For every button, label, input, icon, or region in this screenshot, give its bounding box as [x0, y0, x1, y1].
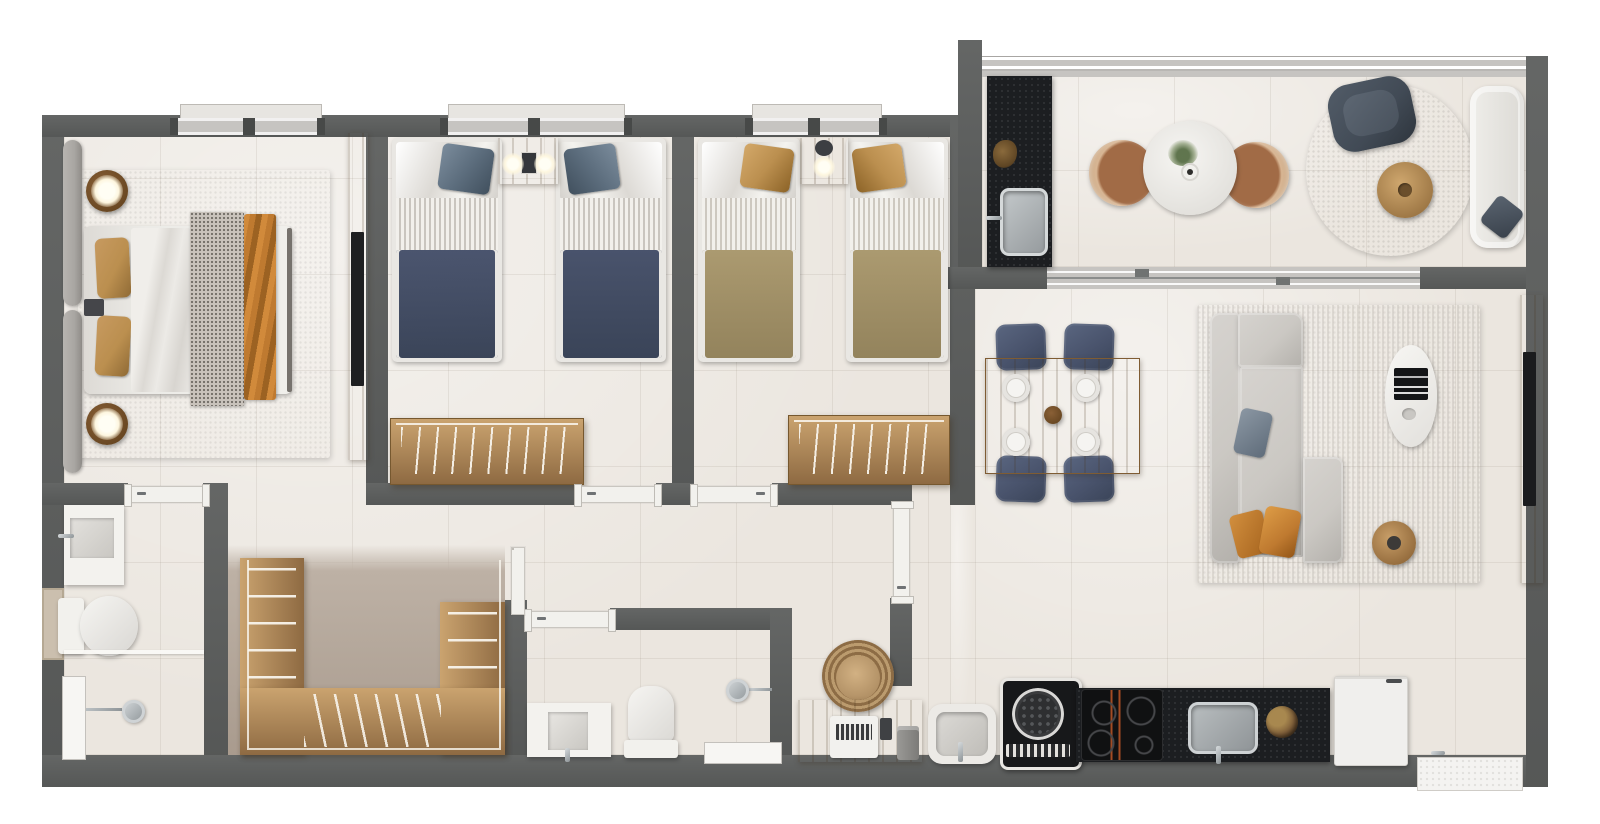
bathroom2-shower-arm — [746, 688, 772, 691]
office-phone — [880, 718, 892, 740]
door-bedroom2 — [580, 486, 656, 503]
bed3-lamp — [813, 156, 835, 178]
sofa-top-section — [1238, 313, 1303, 367]
floor-plan — [0, 0, 1600, 824]
window-bedroom3-cap-left — [745, 118, 753, 135]
door-bathroom2 — [530, 611, 610, 628]
bed2-lamp-right — [534, 153, 556, 175]
balcony-sliding-door — [1047, 267, 1420, 289]
balcony-side-table-decor — [1398, 183, 1412, 197]
master-runner-speckled — [190, 212, 244, 406]
master-headboard-bottom — [63, 310, 82, 473]
living-side-table-bowl — [1387, 536, 1401, 550]
window-sill-master — [180, 104, 322, 119]
window-bedroom2-cap-left — [440, 118, 448, 135]
bed3-twin-right-accent-pillow — [851, 143, 907, 194]
master-headboard-top — [63, 140, 82, 306]
wall-balcony-left-column — [958, 40, 982, 267]
wall-bed2-bottom — [366, 483, 578, 505]
bed2-twin-left-accent-pillow — [437, 143, 495, 196]
window-bedroom2-cap-right — [624, 118, 632, 135]
wall-bathroom2-right — [770, 608, 792, 755]
window-sill-bedroom2 — [448, 104, 625, 119]
window-bedroom3-cap-right — [879, 118, 887, 135]
bed3-nightstand-tray — [815, 140, 833, 156]
ensuite-window-ledge — [62, 676, 86, 760]
master-runner-orange — [244, 214, 276, 400]
bed2-lamp-left — [502, 153, 524, 175]
bathroom2-window-ledge — [704, 742, 782, 764]
bathroom2-toilet-tank — [624, 740, 678, 758]
wall-balcony-divider-right — [1420, 267, 1526, 289]
kitchen-steel-sink — [1188, 702, 1258, 754]
balcony-table-vase-mouth — [1187, 169, 1193, 175]
master-pillow-top — [94, 237, 131, 299]
window-bedroom3-mullion — [808, 118, 820, 135]
master-tv — [351, 232, 364, 386]
master-lamp-bottom — [91, 408, 123, 440]
bed2-twin-left-duvet — [396, 250, 498, 358]
wall-outer-left — [42, 115, 64, 787]
bed3-twin-left-sheet — [702, 198, 796, 250]
service-ledge-outside — [1417, 757, 1523, 791]
balcony-table-plant — [1168, 140, 1198, 166]
wall-bed2-bed3-divider — [672, 137, 694, 505]
bathroom2-shower-head — [726, 679, 749, 702]
washing-machine-drum — [1012, 688, 1064, 740]
bed3-twin-right-sheet — [850, 198, 944, 250]
bed3-twin-left-duvet — [702, 250, 796, 358]
door-bedroom3-handle — [756, 492, 765, 495]
door-ensuite — [130, 486, 204, 503]
master-lamp-top — [91, 175, 123, 207]
office-wicker-chair-seat — [836, 656, 880, 700]
window-master-mullion — [243, 118, 255, 135]
door-bedroom3 — [696, 486, 772, 503]
bed2-twin-left-sheet — [396, 198, 498, 250]
bed3-twin-right-duvet — [850, 250, 944, 358]
ensuite-basin — [70, 518, 114, 558]
balcony-sink-faucet — [986, 216, 1002, 220]
wall-master-bed2-divider — [366, 137, 388, 505]
master-duvet-white — [131, 228, 191, 392]
sofa-chaise — [1303, 457, 1343, 563]
bed2-twin-right-duvet — [560, 250, 662, 358]
bed3-clothes-rack — [788, 415, 950, 485]
wall-bathroom2-top — [610, 608, 792, 630]
bed3-twin-left-accent-pillow — [739, 143, 795, 194]
service-ledge-tap — [1431, 751, 1445, 755]
dining-plate-2 — [1072, 374, 1100, 402]
bathroom2-faucet — [565, 748, 570, 762]
balcony-glass-railing — [982, 56, 1526, 77]
wall-ensuite-closet-divider — [204, 483, 228, 755]
door-living-hall — [893, 507, 910, 598]
door-bathroom2-handle — [537, 617, 546, 620]
ensuite-shower-head — [122, 700, 145, 723]
dining-plate-4 — [1072, 428, 1100, 456]
washing-machine-grille — [1006, 744, 1070, 757]
dining-plate-3 — [1002, 428, 1030, 456]
coffee-table-magazine — [1394, 368, 1428, 400]
master-bed-frame-edge — [287, 228, 292, 392]
wall-balcony-divider-left — [940, 267, 1047, 289]
fridge — [1334, 676, 1408, 766]
dining-centerpiece — [1044, 406, 1062, 424]
kitchen-fruit-bowl — [1266, 706, 1298, 738]
bed2-clothes-rack — [390, 418, 584, 485]
window-master-cap-left — [170, 118, 178, 135]
sliding-door-stop-b — [1276, 277, 1290, 285]
office-canister — [897, 726, 919, 760]
door-bathroom2-leaf — [511, 547, 525, 615]
bed2-twin-right-sheet — [560, 198, 662, 250]
window-sill-bedroom3 — [752, 104, 882, 119]
ensuite-toilet-bowl — [80, 596, 138, 656]
door-living-hall-handle — [897, 586, 906, 589]
master-bedside-tray — [84, 299, 104, 316]
cooktop — [1082, 690, 1162, 760]
window-bedroom2-mullion — [528, 118, 540, 135]
fridge-handle — [1386, 679, 1402, 683]
master-pillow-bottom — [94, 315, 131, 377]
closet-hanging-rail — [247, 560, 501, 750]
window-master-cap-right — [317, 118, 325, 135]
balcony-sink — [1000, 188, 1048, 256]
bathroom2-toilet-bowl — [628, 686, 674, 742]
door-bedroom2-handle — [587, 492, 596, 495]
coffee-table-decor — [1402, 408, 1416, 420]
kitchen-steel-sink-faucet — [1216, 746, 1221, 764]
door-ensuite-handle — [137, 492, 146, 495]
living-tv — [1523, 352, 1536, 506]
ensuite-faucet — [58, 534, 74, 538]
sliding-door-stop-a — [1135, 269, 1149, 277]
bed2-twin-right-accent-pillow — [563, 143, 621, 196]
ensuite-shower-screen — [64, 650, 204, 654]
wall-master-bottom-a — [42, 483, 128, 505]
dining-plate-1 — [1002, 374, 1030, 402]
bathroom2-basin — [548, 712, 588, 750]
office-laptop-keyboard — [836, 724, 872, 740]
kitchen-utility-faucet — [958, 742, 963, 762]
